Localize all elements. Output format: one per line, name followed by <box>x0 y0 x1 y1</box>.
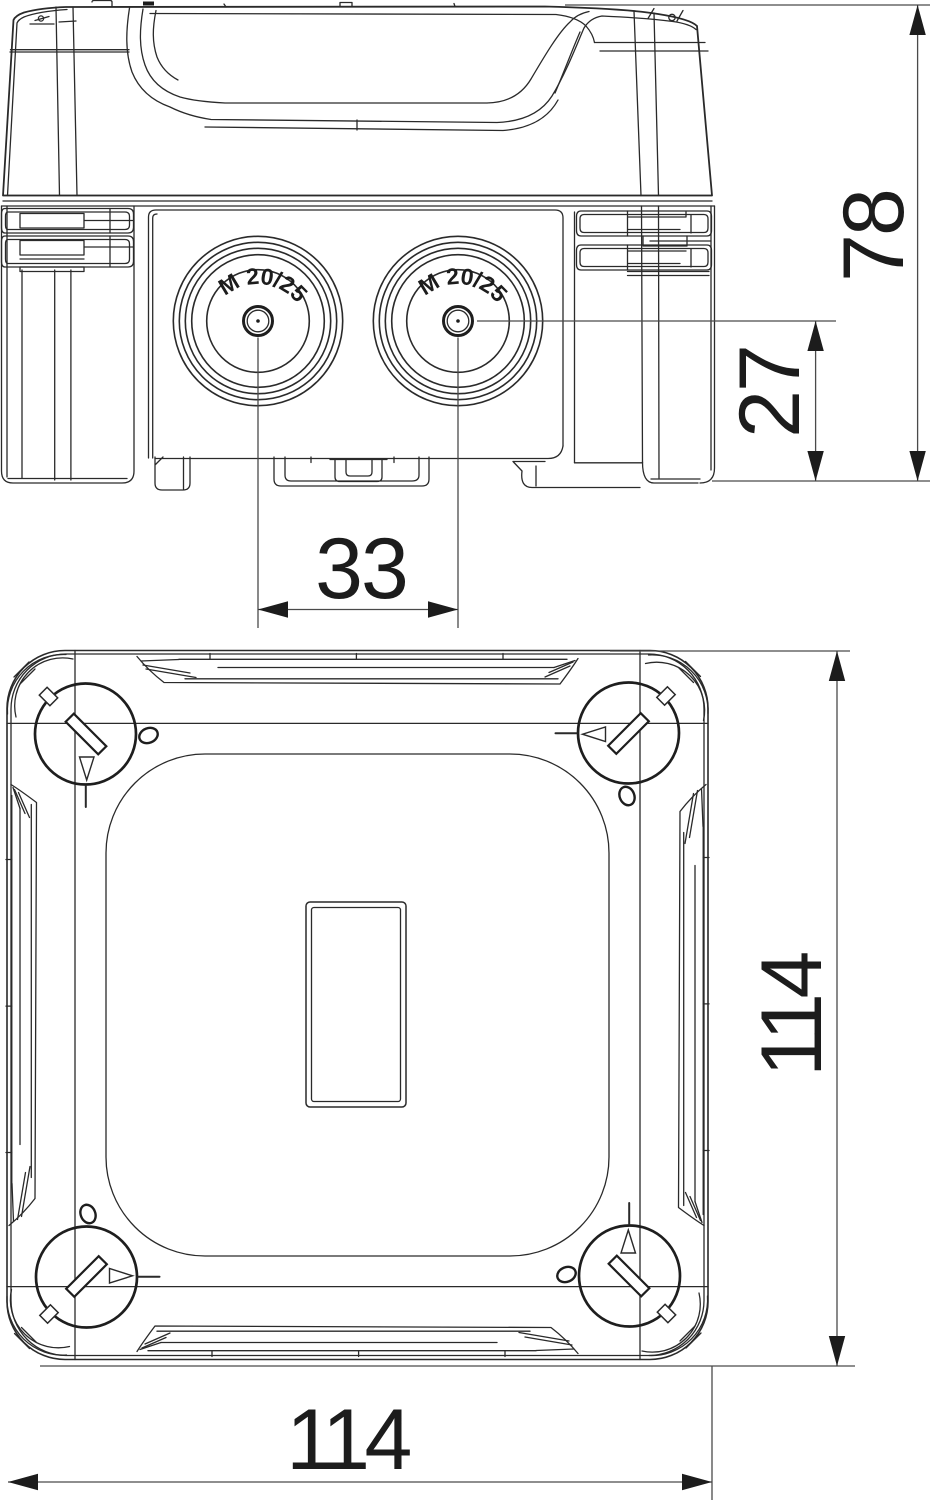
svg-text:27: 27 <box>722 346 818 438</box>
svg-text:33: 33 <box>315 521 407 617</box>
svg-text:78: 78 <box>826 190 922 282</box>
svg-text:114: 114 <box>286 1392 410 1488</box>
svg-text:114: 114 <box>744 953 840 1077</box>
